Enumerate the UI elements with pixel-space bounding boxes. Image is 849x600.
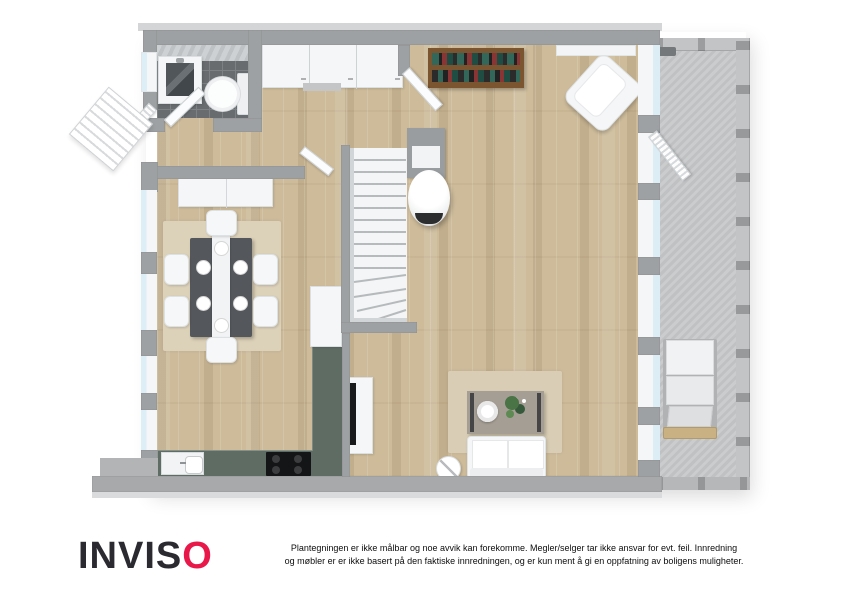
sideboard-divider: [226, 175, 227, 208]
coffee-table-leg-bar: [470, 393, 474, 432]
staircase-treads: [350, 148, 407, 322]
sink-basin: [185, 456, 203, 474]
burner: [272, 455, 280, 463]
floorplan-page: INVISO Plantegningen er ikke målbar og n…: [0, 0, 849, 600]
inviso-logo-text: INVIS: [78, 535, 182, 577]
wardrobe-handle: [348, 78, 353, 80]
terrace-edge-bottom: [656, 477, 750, 490]
entrance-steps: [69, 87, 153, 172]
inviso-logo: INVISO: [78, 533, 213, 579]
wardrobe: [262, 44, 403, 88]
wardrobe-handle: [301, 78, 306, 80]
window-wall-right-post: [638, 183, 660, 200]
doormat: [303, 83, 341, 91]
window-wall-right-post: [638, 257, 660, 275]
plate: [214, 241, 229, 256]
wall-stair-left: [341, 145, 350, 333]
wall-bathroom-right: [248, 30, 262, 132]
lounge-chair-seat-cushion: [666, 376, 714, 405]
window-wall-left: [141, 190, 157, 455]
bookshelf: [428, 48, 524, 88]
wall-bottom: [92, 476, 662, 492]
sofa-seat-cushion: [472, 440, 508, 469]
decor-plant: [505, 396, 519, 410]
dining-chair: [206, 210, 237, 236]
staircase: [350, 148, 407, 322]
dining-chair: [206, 337, 237, 363]
wall-bathroom-bottom-b: [213, 118, 262, 132]
toilet: [203, 71, 251, 117]
window-wall-left-post: [141, 252, 157, 274]
plate: [196, 260, 211, 275]
wall-hall-dining: [157, 166, 305, 179]
toilet-bowl: [204, 76, 241, 112]
kitchen-counter-side: [312, 347, 342, 451]
wall-kitchen-living: [342, 333, 350, 477]
disclaimer-line-2: og møbler er er ikke basert på den fakti…: [258, 555, 770, 568]
window-wall-right: [638, 45, 660, 477]
burner: [294, 466, 302, 474]
cooktop: [266, 452, 311, 476]
coffee-table-leg-bar: [537, 393, 541, 432]
dining-chair: [164, 254, 189, 285]
decor-bowl: [477, 401, 498, 422]
lounge-chair-back-cushion: [666, 340, 714, 375]
wood-stove: [408, 170, 450, 226]
burner: [294, 455, 302, 463]
wall-stair-bottom: [341, 322, 417, 333]
wardrobe-handle: [395, 78, 400, 80]
plate: [214, 318, 229, 333]
sofa: [467, 436, 546, 479]
terrace-railing-right: [736, 38, 750, 490]
dining-chair: [253, 296, 278, 327]
coffee-table: [467, 391, 544, 434]
window-wall-right-post: [638, 337, 660, 355]
bookshelf-row: [432, 70, 520, 82]
plate: [233, 296, 248, 311]
window-wall-right-bottom: [638, 460, 660, 477]
shower-basin: [166, 63, 194, 96]
window-left-bathroom: [141, 52, 157, 92]
sink-faucet: [180, 462, 186, 464]
sofa-seat-cushion: [508, 440, 544, 469]
plate: [233, 260, 248, 275]
wall-top: [143, 30, 660, 45]
shower-faucet: [176, 58, 184, 63]
wall-left-mid: [141, 162, 158, 192]
lounge-chair: [663, 337, 717, 441]
bookshelf-row: [432, 53, 520, 65]
kitchen-sink: [161, 452, 204, 475]
disclaimer-text: Plantegningen er ikke målbar og noe avvi…: [258, 542, 770, 568]
dining-chair: [164, 296, 189, 327]
disclaimer-line-1: Plantegningen er ikke målbar og noe avvi…: [258, 542, 770, 555]
chimney-hatch: [412, 146, 440, 168]
lounge-chair-foot-cushion: [667, 406, 713, 427]
window-wall-left-post: [141, 330, 157, 356]
burner: [272, 466, 280, 474]
tall-cabinet: [310, 286, 342, 347]
plate: [196, 296, 211, 311]
dining-chair: [253, 254, 278, 285]
lounge-chair-wood-bar: [663, 427, 717, 439]
wardrobe-divider: [356, 45, 357, 89]
outer-face-bottom: [92, 491, 662, 498]
window-wall-right-post: [638, 407, 660, 425]
window-top-sill: [556, 45, 636, 56]
inviso-logo-accent-o: O: [182, 535, 213, 577]
window-wall-left-post: [141, 393, 157, 410]
